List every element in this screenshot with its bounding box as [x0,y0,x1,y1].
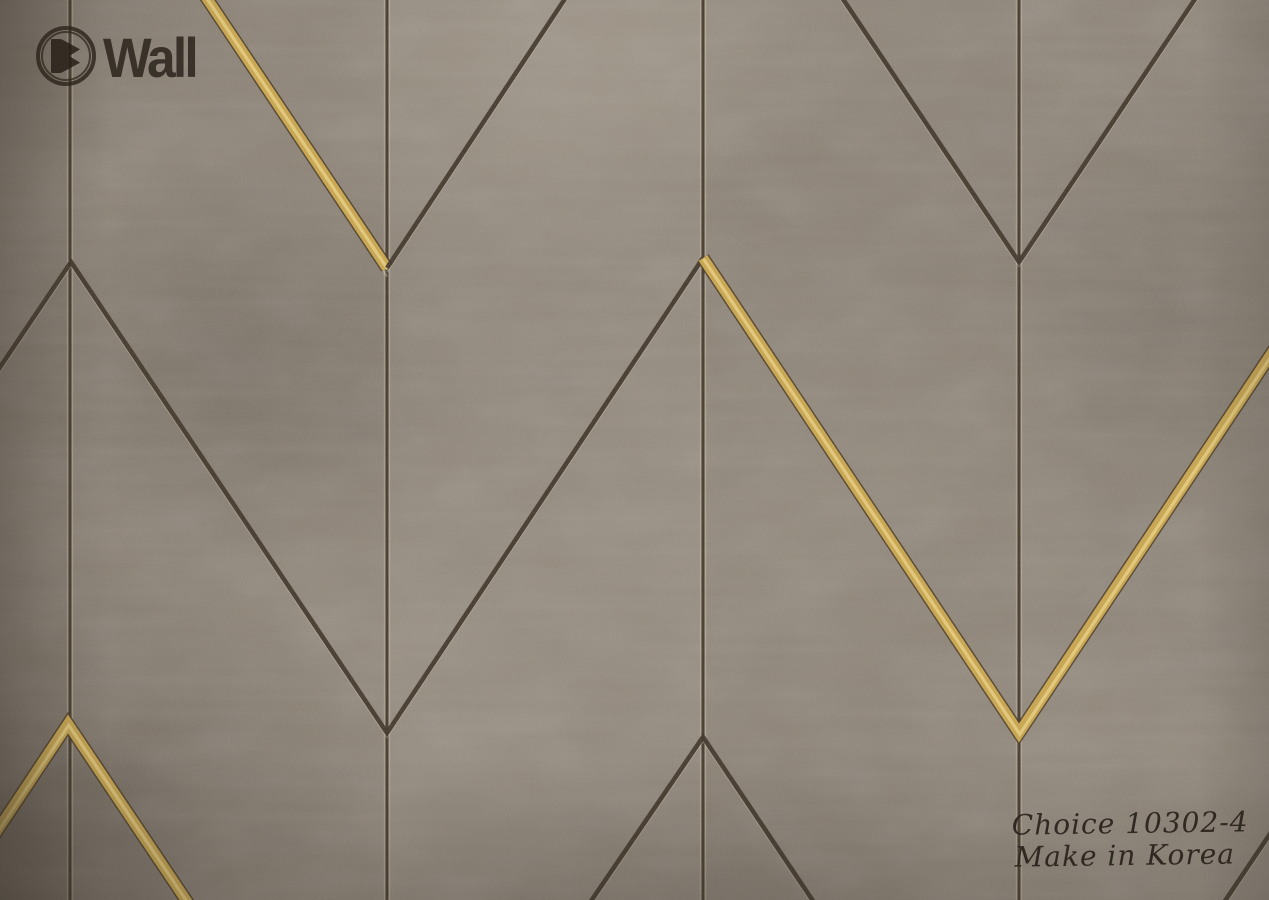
product-code-label: Choice 10302-4 [1012,806,1249,841]
chevron-pattern-svg [0,0,1269,900]
k-monogram-bar [51,39,61,73]
wallpaper-sample-photo: Wall Choice 10302-4 Make in Korea [0,0,1269,900]
origin-label: Make in Korea [1012,838,1249,873]
k-circle-icon [36,26,96,86]
concrete-grain-layer [0,0,1269,900]
product-caption: Choice 10302-4 Make in Korea [1012,806,1250,873]
brand-wordmark: Wall [103,32,196,84]
brand-logo: Wall [36,26,204,86]
